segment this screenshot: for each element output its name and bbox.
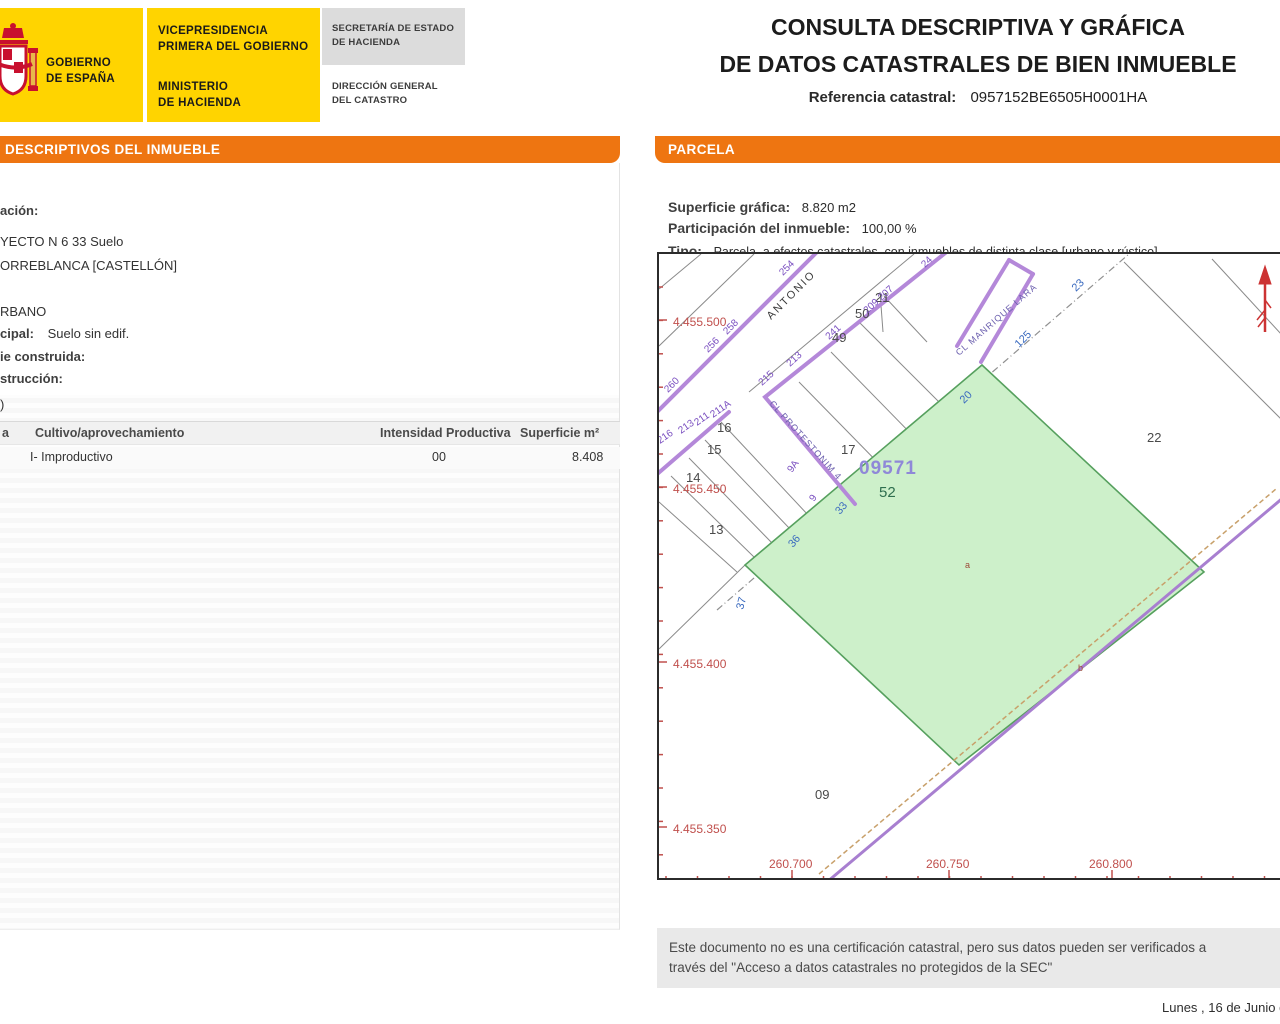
left-section-title: DESCRIPTIVOS DEL INMUEBLE (5, 142, 220, 157)
uso-principal-line: cipal: Suelo sin edif. (0, 326, 129, 341)
ministerio-hacienda-label: MINISTERIO DE HACIENDA (158, 80, 241, 111)
map-label: a (965, 560, 970, 570)
title-line-2: DE DATOS CATASTRALES DE BIEN INMUEBLE (668, 53, 1280, 76)
cadastral-map-frame: 4.455.5004.455.4504.455.4004.455.350260.… (657, 252, 1280, 880)
uso-principal-value: Suelo sin edif. (48, 326, 130, 341)
subparcelas-table-header: a Cultivo/aprovechamiento Intensidad Pro… (0, 421, 620, 445)
map-label: b (1078, 663, 1083, 673)
col-subparcela: a (2, 426, 9, 440)
map-label: 260.800 (1089, 857, 1133, 871)
secretaria-estado-label: SECRETARÍA DE ESTADO DE HACIENDA (332, 22, 454, 50)
col-cultivo: Cultivo/aprovechamiento (35, 426, 184, 440)
uso-principal-label: cipal: (0, 326, 34, 341)
cadastral-reference: Referencia catastral: 0957152BE6505H0001… (668, 89, 1280, 106)
cell-cultivo: I- Improductivo (30, 450, 113, 464)
col-superficie: Superficie m² (520, 426, 599, 440)
map-label: 4.455.500 (673, 315, 727, 329)
cell-intensidad: 00 (432, 450, 446, 464)
map-label: 15 (707, 442, 721, 457)
participacion-label: Participación del inmueble: (668, 220, 850, 236)
anio-construccion-label: strucción: (0, 371, 63, 386)
vicepresidencia-label: VICEPRESIDENCIA PRIMERA DEL GOBIERNO (158, 24, 308, 55)
map-label: 09571 (859, 458, 917, 479)
map-label: 260.700 (769, 857, 813, 871)
spain-coat-of-arms-icon (0, 22, 42, 122)
address-line-1: YECTO N 6 33 Suelo (0, 234, 123, 249)
disclaimer-line-1: Este documento no es una certificación c… (669, 938, 1280, 958)
map-label: 09 (815, 787, 829, 802)
cell-superficie: 8.408 (572, 450, 603, 464)
right-section-title: PARCELA (668, 142, 735, 157)
superficie-construida-label: ie construida: (0, 349, 85, 364)
participacion-value: 100,00 % (862, 221, 917, 236)
disclaimer-line-2: través del "Acceso a datos catastrales n… (669, 958, 1280, 978)
address-line-2: ORREBLANCA [CASTELLÓN] (0, 258, 177, 273)
document-title: CONSULTA DESCRIPTIVA Y GRÁFICA DE DATOS … (668, 10, 1280, 106)
map-label: 52 (879, 484, 896, 501)
superficie-grafica-value: 8.820 m2 (802, 200, 856, 215)
superficie-grafica-label: Superficie gráfica: (668, 199, 790, 215)
col-intensidad: Intensidad Productiva (380, 426, 511, 440)
truncated-paren: ) (0, 397, 4, 412)
map-label: 4.455.400 (673, 657, 727, 671)
localizacion-label: ación: (0, 203, 38, 218)
clase-value: RBANO (0, 304, 46, 319)
map-label: 17 (841, 442, 855, 457)
reference-label: Referencia catastral: (809, 89, 957, 106)
map-label: 260.750 (926, 857, 970, 871)
reference-value: 0957152BE6505H0001HA (970, 89, 1147, 106)
map-label: 4.455.350 (673, 822, 727, 836)
direccion-general-catastro-label: DIRECCIÓN GENERAL DEL CATASTRO (332, 80, 438, 108)
section-header-datos-descriptivos: DESCRIPTIVOS DEL INMUEBLE (0, 136, 620, 163)
participacion-line: Participación del inmueble: 100,00 % (668, 220, 917, 236)
map-label: 16 (717, 420, 731, 435)
gobierno-de-espana-label: GOBIERNO DE ESPAÑA (46, 56, 115, 87)
cadastral-map[interactable]: 4.455.5004.455.4504.455.4004.455.350260.… (659, 254, 1280, 880)
property-details-panel: ación: YECTO N 6 33 Suelo ORREBLANCA [CA… (0, 163, 620, 930)
disclaimer-box: Este documento no es una certificación c… (657, 928, 1280, 988)
superficie-grafica-line: Superficie gráfica: 8.820 m2 (668, 199, 856, 215)
map-label: 13 (709, 522, 723, 537)
government-header: GOBIERNO DE ESPAÑA VICEPRESIDENCIA PRIME… (0, 8, 465, 122)
document-date: Lunes , 16 de Junio de 2 (1162, 1000, 1280, 1015)
section-header-parcela: PARCELA (655, 136, 1280, 163)
title-line-1: CONSULTA DESCRIPTIVA Y GRÁFICA (668, 16, 1280, 39)
map-label: 14 (686, 470, 700, 485)
map-label: 22 (1147, 430, 1161, 445)
table-row: I- Improductivo 00 8.408 (0, 447, 620, 469)
left-panel-background (0, 163, 619, 395)
